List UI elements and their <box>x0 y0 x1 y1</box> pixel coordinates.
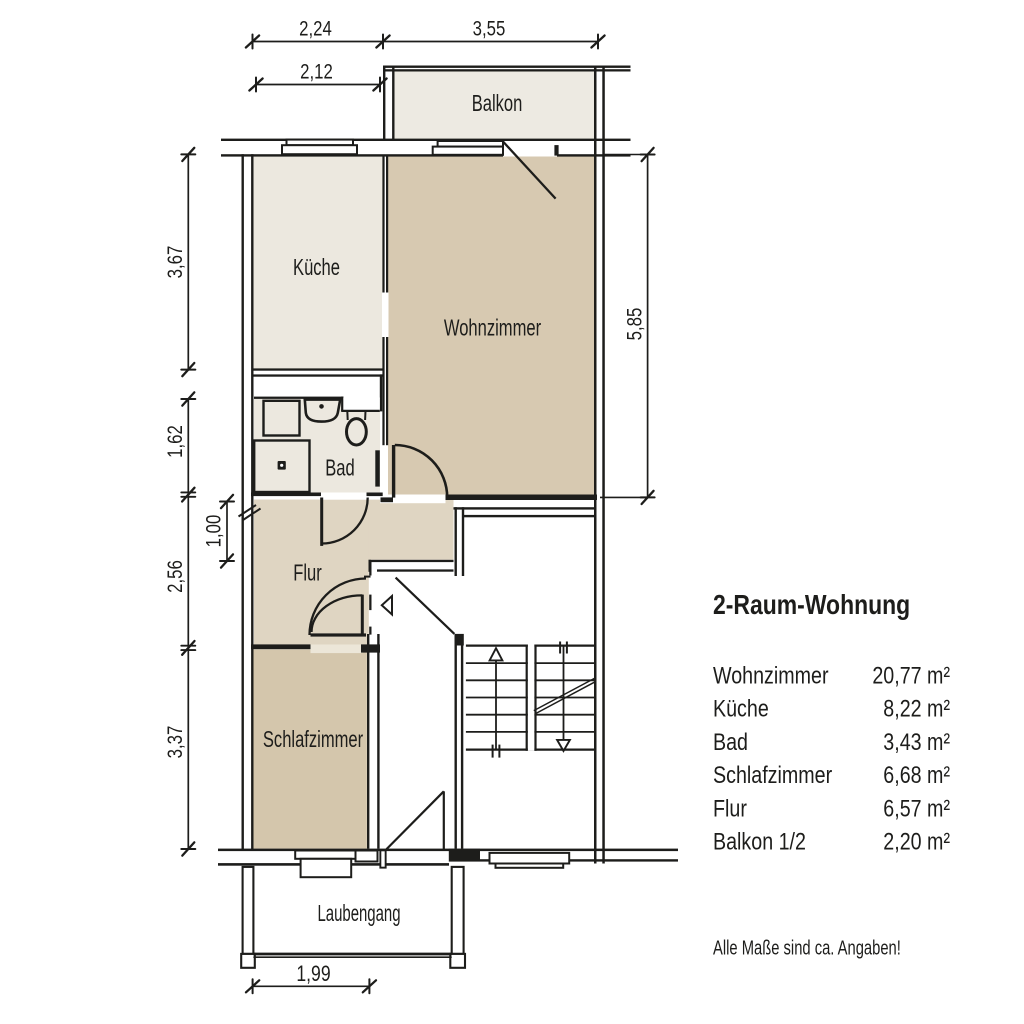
svg-text:Küche: Küche <box>293 255 340 280</box>
svg-text:Flur: Flur <box>293 561 322 586</box>
svg-text:8,22 m²: 8,22 m² <box>883 695 950 722</box>
svg-text:6,68 m²: 6,68 m² <box>883 761 950 788</box>
svg-text:6,57 m²: 6,57 m² <box>883 794 950 821</box>
svg-text:Wohnzimmer: Wohnzimmer <box>713 662 829 689</box>
svg-text:Balkon 1/2: Balkon 1/2 <box>713 828 806 855</box>
svg-text:20,77 m²: 20,77 m² <box>872 662 950 689</box>
svg-text:Laubengang: Laubengang <box>317 901 400 927</box>
svg-text:3,43 m²: 3,43 m² <box>883 728 950 755</box>
svg-text:Alle Maße sind ca. Angaben!: Alle Maße sind ca. Angaben! <box>713 936 901 959</box>
svg-text:2,12: 2,12 <box>300 61 333 84</box>
svg-text:3,37: 3,37 <box>164 726 187 759</box>
svg-text:2-Raum-Wohnung: 2-Raum-Wohnung <box>713 590 910 621</box>
svg-text:5,85: 5,85 <box>624 308 647 341</box>
svg-text:1,00: 1,00 <box>203 515 226 548</box>
svg-text:Flur: Flur <box>713 794 747 821</box>
svg-text:Schlafzimmer: Schlafzimmer <box>713 761 832 788</box>
svg-text:2,56: 2,56 <box>164 560 187 593</box>
svg-text:3,55: 3,55 <box>473 18 506 41</box>
svg-text:2,20 m²: 2,20 m² <box>883 828 950 855</box>
svg-text:3,67: 3,67 <box>164 246 187 279</box>
svg-text:Küche: Küche <box>713 695 769 722</box>
svg-text:2,24: 2,24 <box>299 18 332 41</box>
svg-text:1,62: 1,62 <box>164 425 187 458</box>
svg-text:Balkon: Balkon <box>472 91 523 116</box>
svg-text:Wohnzimmer: Wohnzimmer <box>444 316 541 341</box>
svg-text:Bad: Bad <box>713 728 748 755</box>
svg-text:1,99: 1,99 <box>296 962 330 986</box>
svg-text:Schlafzimmer: Schlafzimmer <box>263 727 364 752</box>
svg-text:Bad: Bad <box>325 456 354 481</box>
